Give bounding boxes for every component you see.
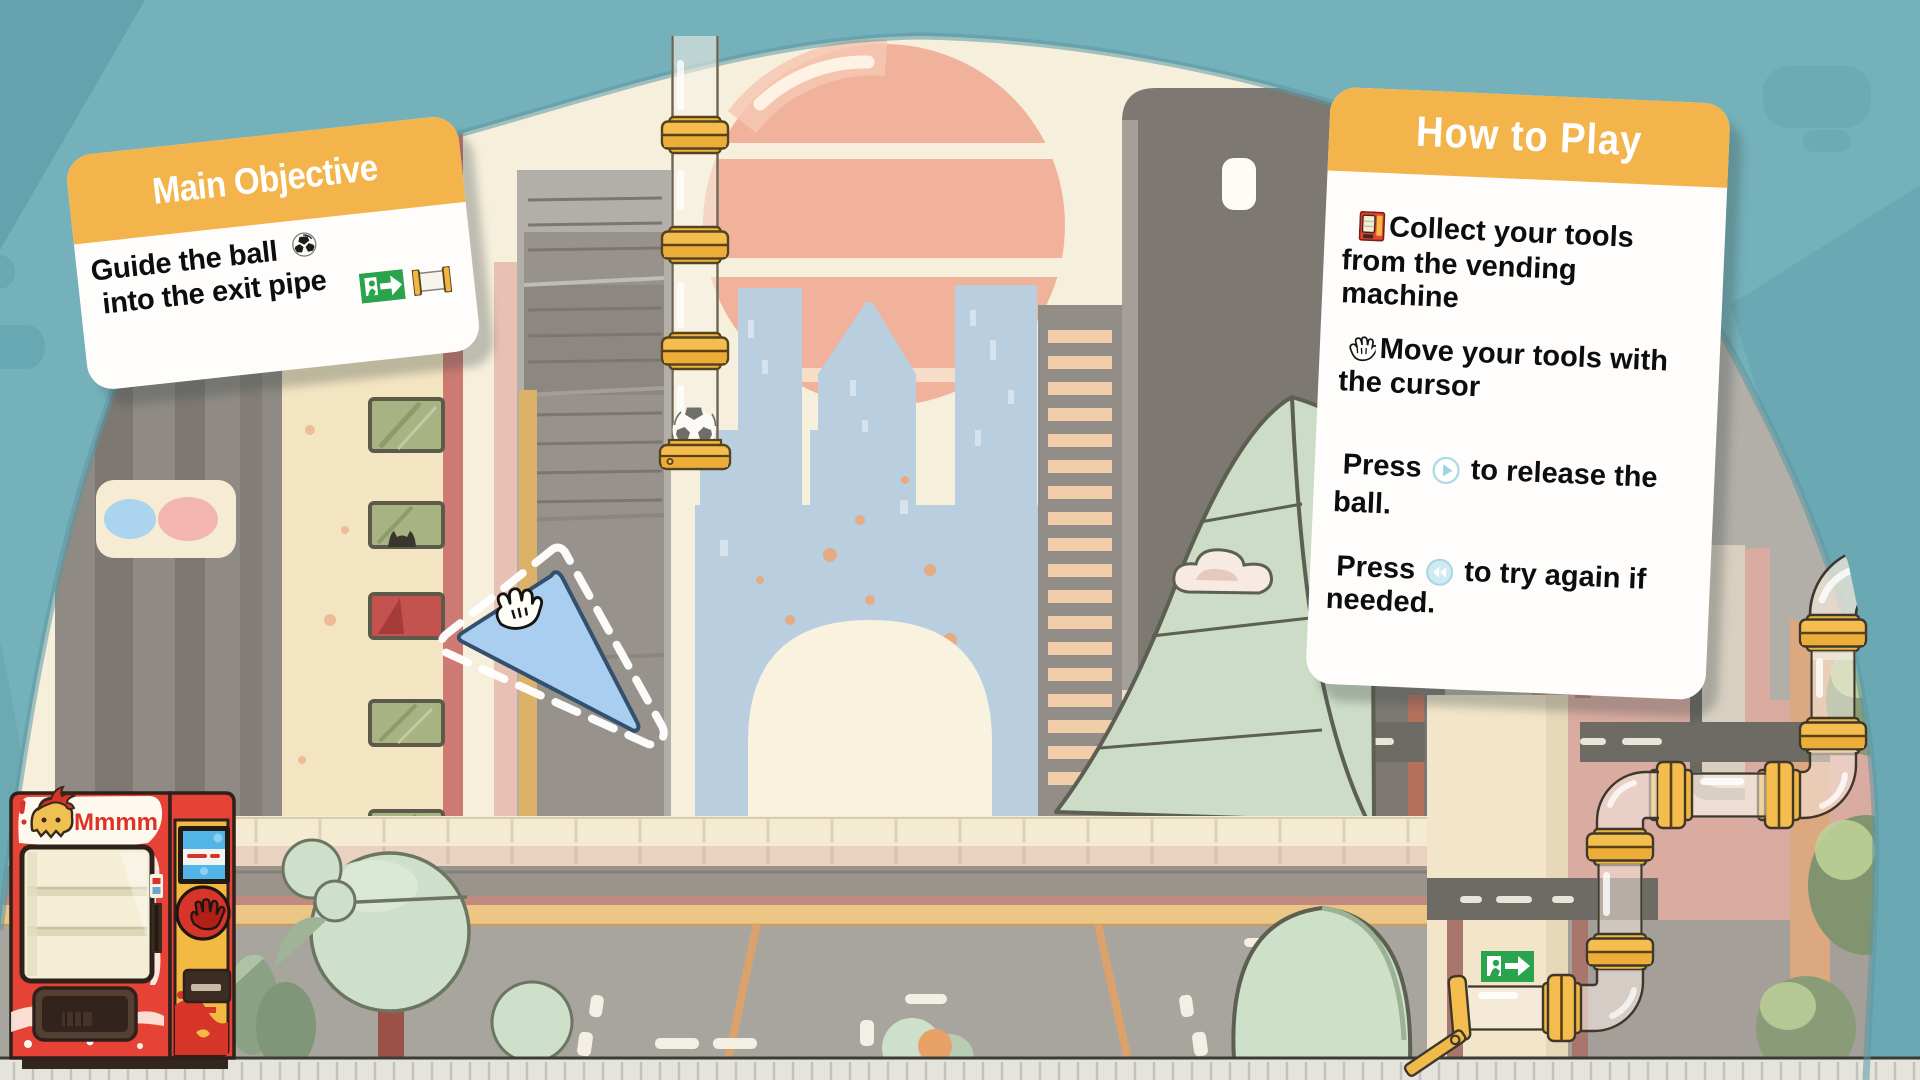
svg-text:Mmmm: Mmmm — [74, 809, 158, 836]
